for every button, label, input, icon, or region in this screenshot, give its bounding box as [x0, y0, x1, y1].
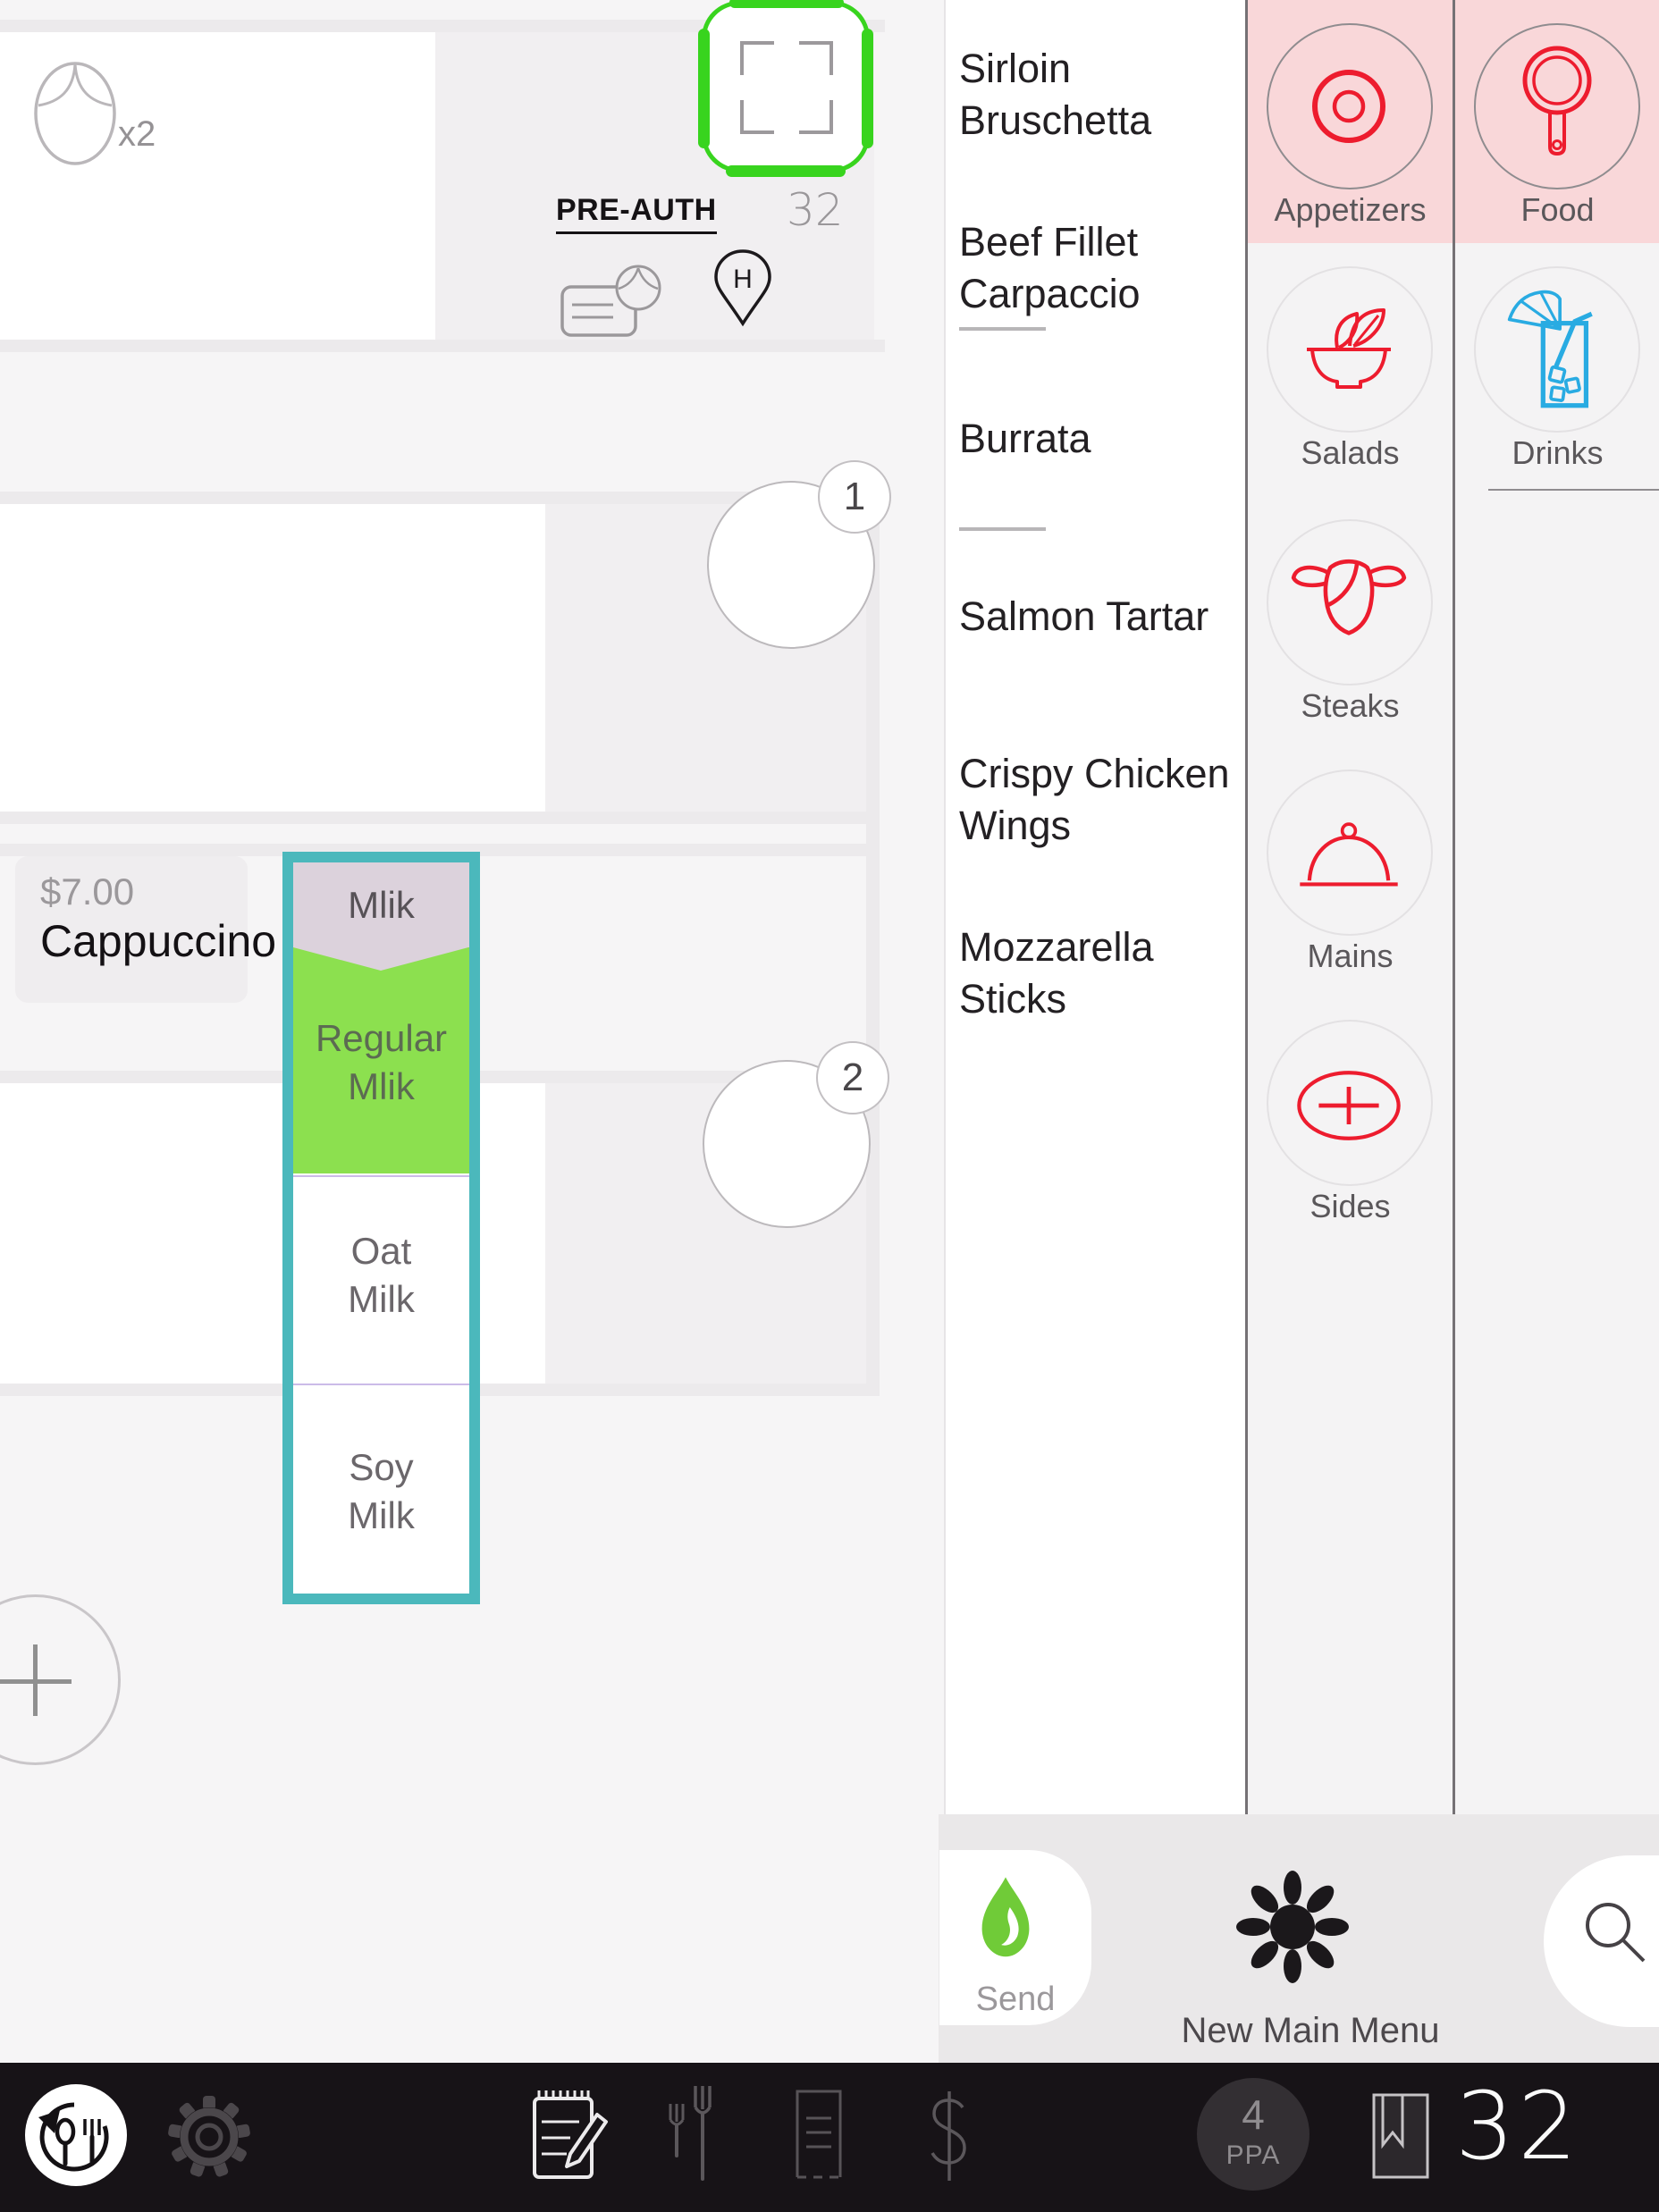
tab-appetizers[interactable]: Appetizers [1248, 0, 1453, 243]
target-rings-icon [1300, 57, 1398, 156]
flame-icon [973, 1873, 1038, 1963]
search-icon [1576, 1895, 1651, 1970]
menu-divider [959, 327, 1046, 331]
menu-item-beef-fillet-carpaccio[interactable]: Beef Fillet Carpaccio [944, 216, 1254, 320]
dollar-icon[interactable] [927, 2091, 972, 2181]
ppa-label: PPA [1197, 2141, 1310, 2171]
tab-food[interactable]: Food [1455, 0, 1659, 243]
cloche-icon [1294, 818, 1403, 898]
pan-icon [1512, 43, 1602, 168]
item-quantity: x2 [118, 114, 156, 155]
tab-steaks[interactable]: Steaks [1248, 496, 1453, 746]
tab-salads[interactable]: Salads [1248, 243, 1453, 496]
item-name: Cappuccino [40, 915, 276, 967]
seat-badge-1[interactable]: 1 [818, 460, 891, 534]
tab-sides[interactable]: Sides [1248, 997, 1453, 1247]
screen-number: 32 [1455, 2072, 1580, 2181]
modifier-option-label: Regular Mlik [293, 1014, 469, 1111]
cocktail-glass-icon [1505, 290, 1609, 411]
plus-icon [33, 1644, 38, 1716]
menu-item-mozzarella-sticks[interactable]: Mozzarella Sticks [944, 921, 1254, 1025]
menu-item-sirloin-bruschetta[interactable]: Sirloin Bruschetta [944, 43, 1254, 147]
modifier-popup-header: Mlik [293, 862, 469, 947]
send-label: Send [939, 1981, 1091, 2019]
plate-icon [32, 61, 118, 166]
cow-head-icon [1289, 553, 1409, 652]
preauth-button[interactable]: PRE-AUTH [556, 193, 717, 234]
forks-icon[interactable] [663, 2084, 720, 2183]
modifier-option-oat-milk[interactable]: Oat Milk [293, 1227, 469, 1324]
notepad-pencil-icon[interactable] [529, 2086, 611, 2183]
book-bookmark-icon[interactable] [1372, 2093, 1429, 2179]
seat-badge-2[interactable]: 2 [816, 1041, 889, 1114]
scan-frame-icon[interactable] [702, 1, 870, 172]
menu-item-crispy-chicken-wings[interactable]: Crispy Chicken Wings [944, 748, 1254, 852]
row-separator [0, 340, 885, 352]
modifier-option-soy-milk[interactable]: Soy Milk [293, 1443, 469, 1540]
chevron-down-icon [293, 947, 468, 971]
row-separator [0, 812, 880, 824]
tab-mains[interactable]: Mains [1248, 746, 1453, 997]
modifier-popup: Mlik Regular Mlik Oat Milk Soy Milk [282, 852, 480, 1604]
new-main-menu-button[interactable]: New Main Menu [1158, 2011, 1462, 2051]
tab-drinks[interactable]: Drinks [1455, 243, 1659, 496]
item-price: $7.00 [40, 871, 134, 913]
menu-divider [959, 527, 1046, 531]
drinks-underline [1488, 489, 1659, 491]
order-item-cappuccino[interactable]: $7.00 Cappuccino [15, 856, 248, 1003]
salad-bowl-icon [1300, 300, 1398, 399]
menu-item-burrata[interactable]: Burrata [944, 413, 1254, 465]
receipt-icon[interactable] [794, 2088, 844, 2181]
table-number: 32 [787, 184, 844, 236]
sun-icon[interactable] [1230, 1864, 1355, 1989]
row-separator-vertical [866, 492, 880, 1396]
gear-icon[interactable] [166, 2094, 252, 2180]
location-pin-icon[interactable]: H [713, 248, 772, 327]
pos-screen: x2 PRE-AUTH 32 H 1 $7.00 Cappuccino 2 [0, 0, 1659, 2212]
ppa-value: 4 [1197, 2090, 1310, 2139]
plus-ellipse-icon [1294, 1068, 1403, 1143]
menu-item-salmon-tartar[interactable]: Salmon Tartar [944, 591, 1254, 643]
ppa-button[interactable]: 4 PPA [1197, 2078, 1310, 2191]
undo-cutlery-icon [26, 2085, 126, 2185]
svg-text:H: H [733, 265, 753, 294]
card-plate-icon[interactable] [560, 265, 663, 338]
order-row-card[interactable] [0, 504, 545, 812]
